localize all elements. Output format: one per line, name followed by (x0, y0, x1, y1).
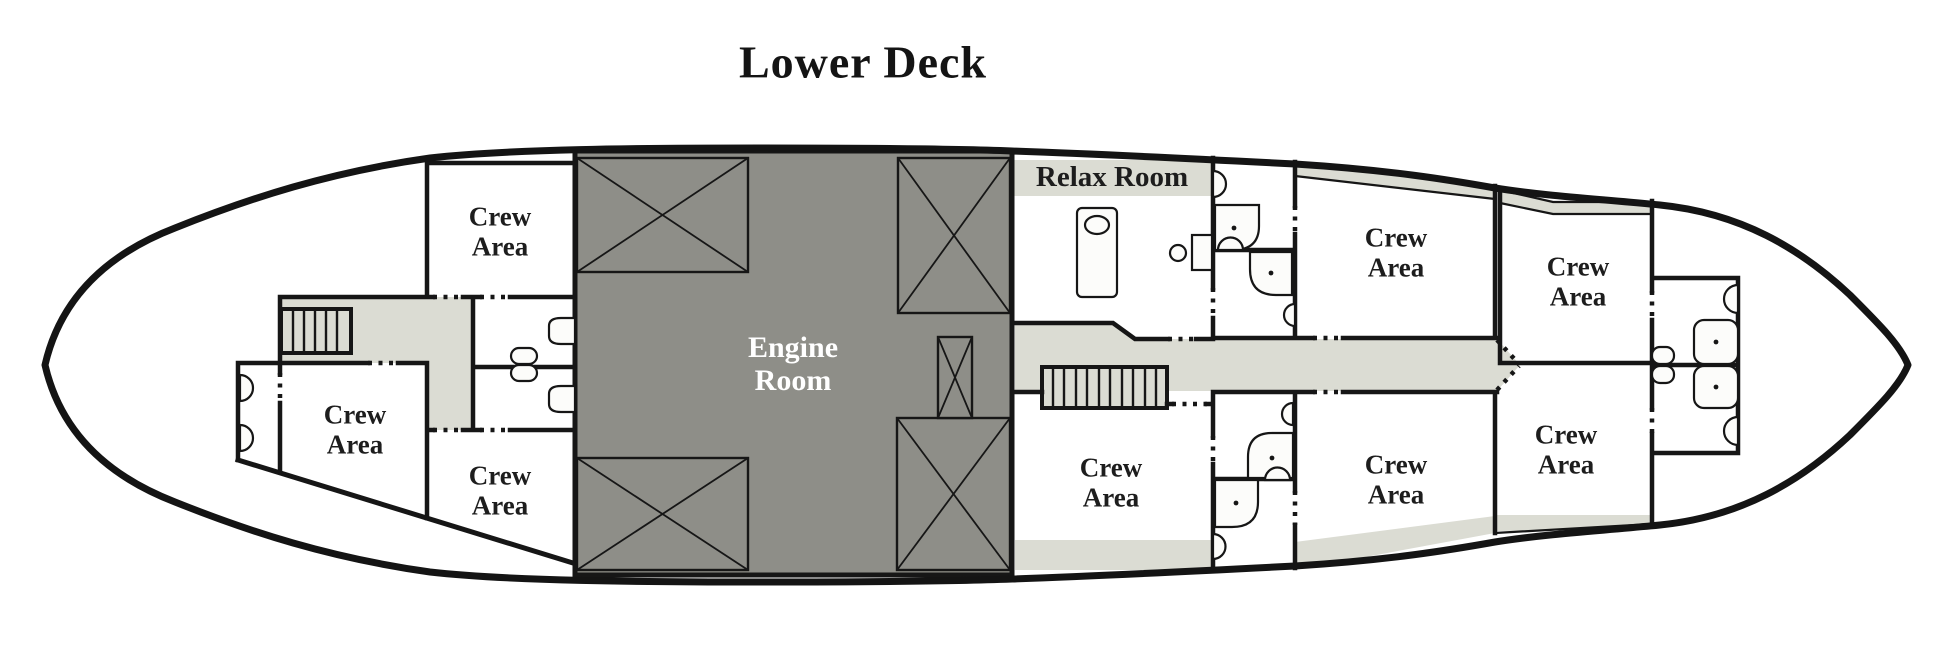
engine-hatch-icon (897, 418, 1010, 570)
stairs-forward-icon (281, 309, 351, 353)
sink-icon (511, 365, 537, 381)
massage-table-icon (1077, 208, 1117, 297)
stool-icon (1170, 245, 1186, 261)
sink-icon (1652, 347, 1674, 364)
deck-strip-crew-mid-lower (1015, 540, 1213, 570)
room-label-crew-aft-lower-outer: Crew Area (1535, 420, 1597, 479)
room-label-crew-aft-upper-inner: Crew Area (1365, 223, 1427, 282)
room-label-engine: Engine Room (748, 331, 838, 397)
room-label-relax: Relax Room (1036, 162, 1188, 194)
engine-hatch-icon (938, 337, 972, 418)
room-label-crew-fwd-top: Crew Area (469, 202, 531, 261)
engine-hatch-icon (577, 458, 748, 570)
deck-plan-drawing (0, 0, 1958, 656)
engine-hatch-icon (577, 158, 748, 272)
stairs-main-icon (1042, 367, 1167, 408)
toilet-icon (549, 318, 575, 344)
room-label-crew-mid-lower: Crew Area (1080, 453, 1142, 512)
sink-icon (511, 348, 537, 364)
deck-title: Lower Deck (739, 36, 987, 89)
toilet-icon (549, 386, 575, 412)
room-label-crew-fwd-bottom: Crew Area (469, 461, 531, 520)
deck-plan: Lower Deck Crew Area Crew Area Crew Area… (0, 0, 1958, 656)
room-label-crew-aft-lower-inner: Crew Area (1365, 450, 1427, 509)
room-label-crew-fwd-mid: Crew Area (324, 400, 386, 459)
sink-icon (1652, 366, 1674, 383)
room-label-crew-aft-upper-outer: Crew Area (1547, 252, 1609, 311)
desk-icon (1192, 235, 1212, 270)
engine-hatch-icon (898, 158, 1010, 313)
